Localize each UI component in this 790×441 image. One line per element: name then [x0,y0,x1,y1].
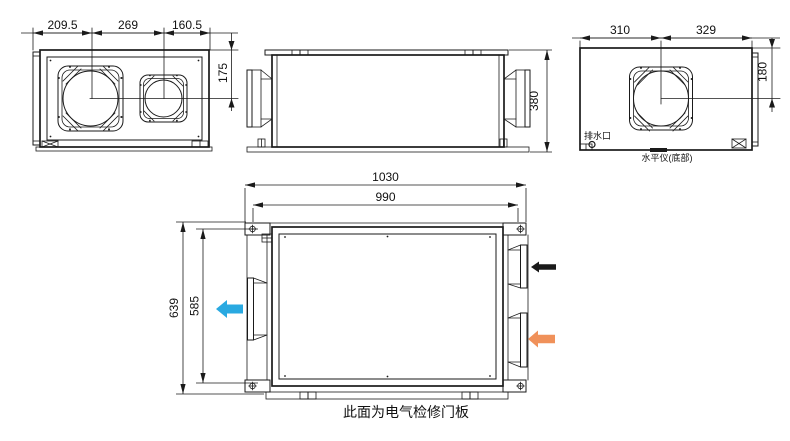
drain-label: 排水口 [584,130,611,141]
hvac-unit-dimension-drawing: 209.5 269 160.5 175 [0,0,790,441]
service-panel-note: 此面为电气检修门板 [343,404,469,420]
dim-duct-offset-right: 329 [696,23,716,37]
dim-case-depth: 585 [188,296,202,316]
plan-access-door [279,234,496,379]
front-base [36,141,212,151]
mounting-bracket-top-right [503,223,526,235]
dim-duct-offset-left: 310 [610,23,630,37]
plan-view: 1030 990 639 585 此面为电气检修门板 [167,170,556,420]
dim-case-length: 990 [375,190,395,204]
mounting-bracket-bottom-right [503,380,526,392]
plan-collar-exhaust [248,278,268,340]
front-end-view: 209.5 269 160.5 175 [21,18,238,151]
end-view: 排水口 水平仪(底部) 310 329 [572,23,780,163]
plan-dimensions: 1030 990 639 585 [167,170,526,394]
plan-door-screws [284,236,491,378]
dim-overall-depth: 639 [167,298,181,318]
dim-duct-center-height: 175 [216,63,230,83]
dim-duct-spacing: 269 [118,18,138,32]
fresh-air-arrow [528,331,555,348]
exhaust-air-arrow [216,300,243,318]
level-gauge-icon [650,148,667,152]
side-casing [272,55,504,147]
dim-end-duct-center-height: 180 [756,62,770,82]
side-base-plate [247,139,529,152]
dim-duct2-offset: 160.5 [172,18,202,32]
front-dimensions: 209.5 269 160.5 175 [21,18,238,111]
mounting-bracket-bottom-left [245,380,270,392]
plan-bottom-rail [266,392,508,399]
dim-unit-height: 380 [527,91,541,111]
dim-duct1-offset: 209.5 [47,18,77,32]
plan-end-panels [247,235,528,380]
side-duct-collar-left [247,70,272,127]
front-hinge-strip [33,52,40,145]
front-centerlines [33,28,238,99]
dim-overall-length: 1030 [372,170,399,184]
plan-casing [272,227,503,386]
plan-collar-fresh [508,313,527,367]
end-centerlines [580,41,780,104]
side-dimensions: 380 [509,50,552,152]
plan-collar-return [508,245,527,288]
drain-port: 排水口 [584,130,611,148]
side-view: 380 [247,50,552,152]
technical-drawing-page: 209.5 269 160.5 175 [0,0,790,441]
return-air-arrow [531,262,556,273]
level-gauge-label: 水平仪(底部) [642,152,693,163]
